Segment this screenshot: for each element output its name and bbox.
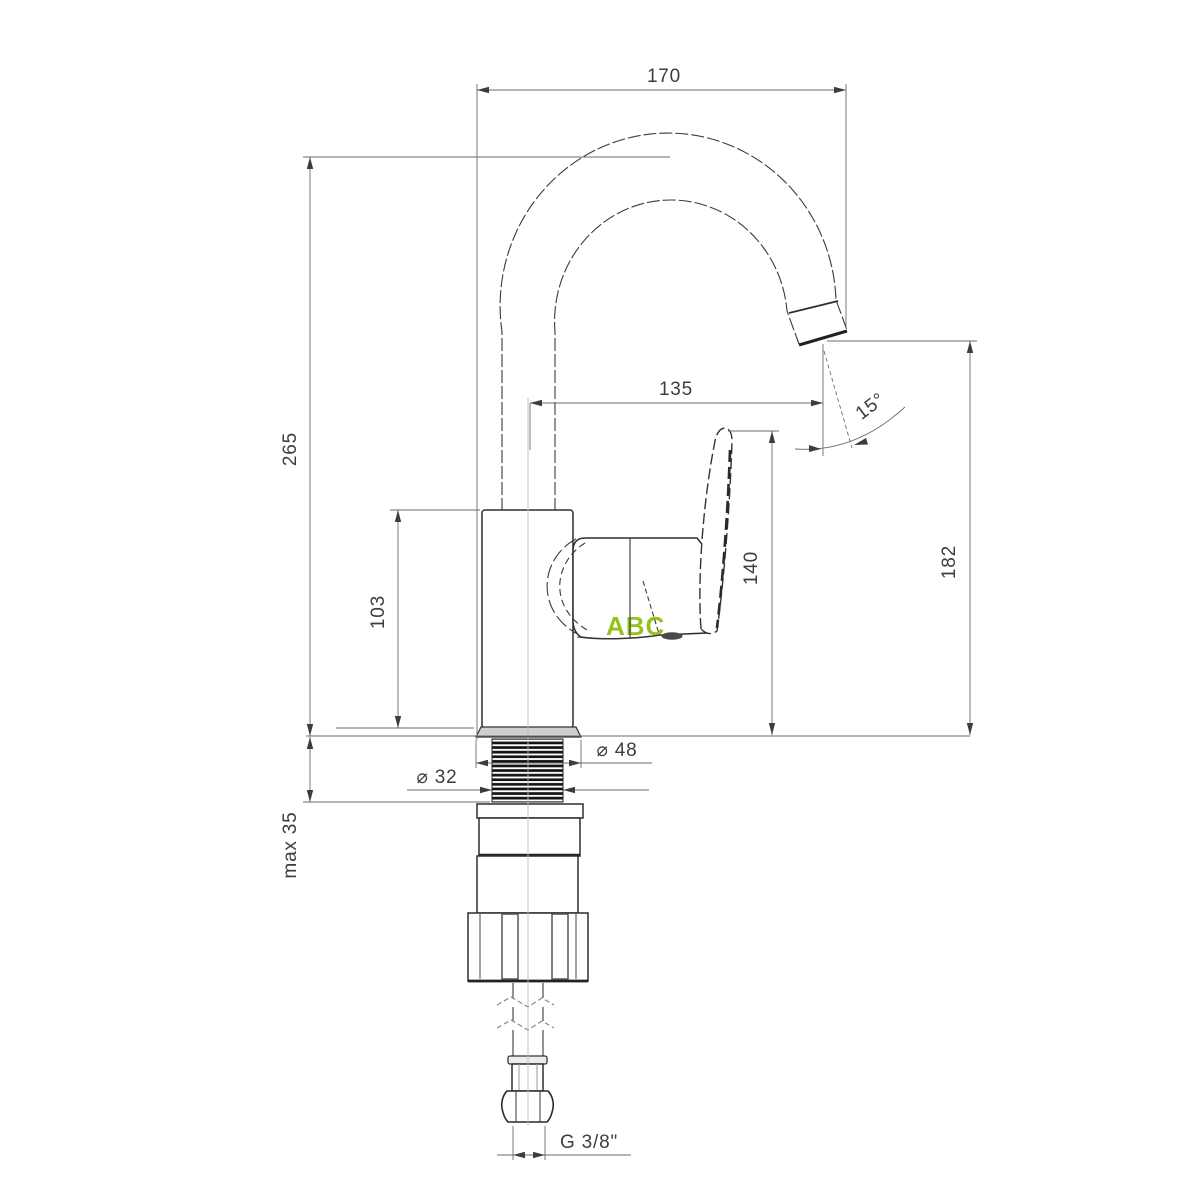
aerator-band-line: [789, 301, 838, 313]
dim-label-135: 135: [659, 379, 693, 400]
mounting-washer: [477, 804, 583, 818]
faucet-outline: ABC: [468, 133, 847, 1126]
dim-label-max35: max 35: [280, 811, 301, 878]
lever-blade: [700, 428, 732, 634]
brand-watermark: ABC: [606, 611, 665, 641]
dimension-max-counter-thickness: max 35: [280, 737, 490, 879]
dim-label-265: 265: [280, 432, 301, 466]
dimension-overall-height: 265: [280, 157, 670, 736]
faucet-dimension-drawing: ABC: [0, 0, 1200, 1200]
threaded-shank: [492, 739, 563, 802]
spout-gooseneck: [500, 133, 847, 511]
dimension-body-height: 103: [336, 510, 480, 728]
mounting-body-lower: [477, 856, 578, 913]
spout-outer-curve: [500, 133, 847, 511]
supply-hose: [497, 983, 554, 1056]
dim-label-d48: ⌀ 48: [596, 740, 637, 761]
hose-break-mark-2: [497, 1020, 554, 1030]
spout-inner-curve: [555, 200, 799, 511]
fitting-collar: [508, 1056, 547, 1064]
dimension-lever-height: 140: [728, 431, 779, 735]
deck-flange: [476, 727, 581, 737]
dim-label-182: 182: [939, 545, 960, 579]
dim-label-170: 170: [647, 66, 681, 87]
dimension-hose-thread: G 3/8": [497, 1126, 631, 1160]
technical-drawing-page: ABC: [0, 0, 1200, 1200]
dim-label-140: 140: [741, 551, 762, 585]
mounting-body-upper: [479, 818, 580, 856]
nut-slot-left: [502, 914, 518, 979]
hose-fitting: [502, 1056, 554, 1122]
aerator-end-face: [799, 331, 847, 345]
dim-label-d32: ⌀ 32: [416, 767, 457, 788]
handle-underside-detail: [662, 632, 683, 640]
fitting-body: [512, 1064, 543, 1091]
dim-label-103: 103: [368, 595, 389, 629]
hose-break-mark-1: [497, 997, 554, 1007]
lever-handle: [700, 428, 732, 634]
dim-label-15deg: 15°: [852, 389, 890, 425]
nut-slot-right: [552, 914, 568, 979]
hex-nut: [502, 1091, 554, 1122]
dimension-outlet-height: 182: [827, 341, 977, 735]
dimension-spout-reach: 135: [530, 379, 823, 450]
dim-label-g38: G 3/8": [560, 1132, 618, 1153]
